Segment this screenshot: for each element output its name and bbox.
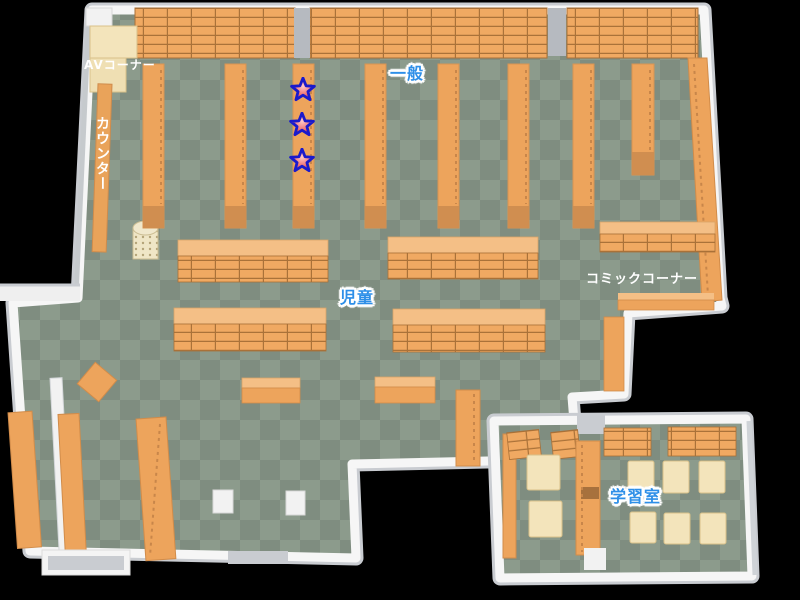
entrance-wall [0,284,80,301]
label-comic-corner: コミックコーナー [586,268,698,287]
seat-table [286,491,305,515]
av-corner-shelf [90,26,137,58]
star-marker-icon[interactable] [289,112,315,138]
study-table [663,461,689,493]
star-marker-icon[interactable] [289,148,315,174]
pillar [548,8,566,56]
study-door [577,414,605,434]
study-table [527,455,560,490]
window [228,551,288,564]
label-children: 児童 [340,284,374,308]
pillar [294,8,310,58]
av-corner-shelf [86,8,112,26]
wall-bookshelf [567,8,698,58]
wall-bookshelf [310,8,547,58]
label-general: 一般 [390,60,424,84]
label-study-room: 学習室 [610,483,661,507]
star-marker-icon[interactable] [290,77,316,103]
study-table [529,501,562,537]
seat-table [213,490,233,513]
study-table [699,461,725,493]
label-av-corner: AVコーナー [84,56,156,73]
wall-bookshelf [135,8,295,58]
label-counter: カウンター [92,116,112,191]
floor-map-svg [0,0,800,600]
door-glass [48,556,124,570]
study-table [630,512,656,543]
study-table [700,513,726,544]
study-table [664,513,690,544]
library-map-stage: AVコーナー カウンター 一般 児童 コミックコーナー 学習室 [0,0,800,600]
